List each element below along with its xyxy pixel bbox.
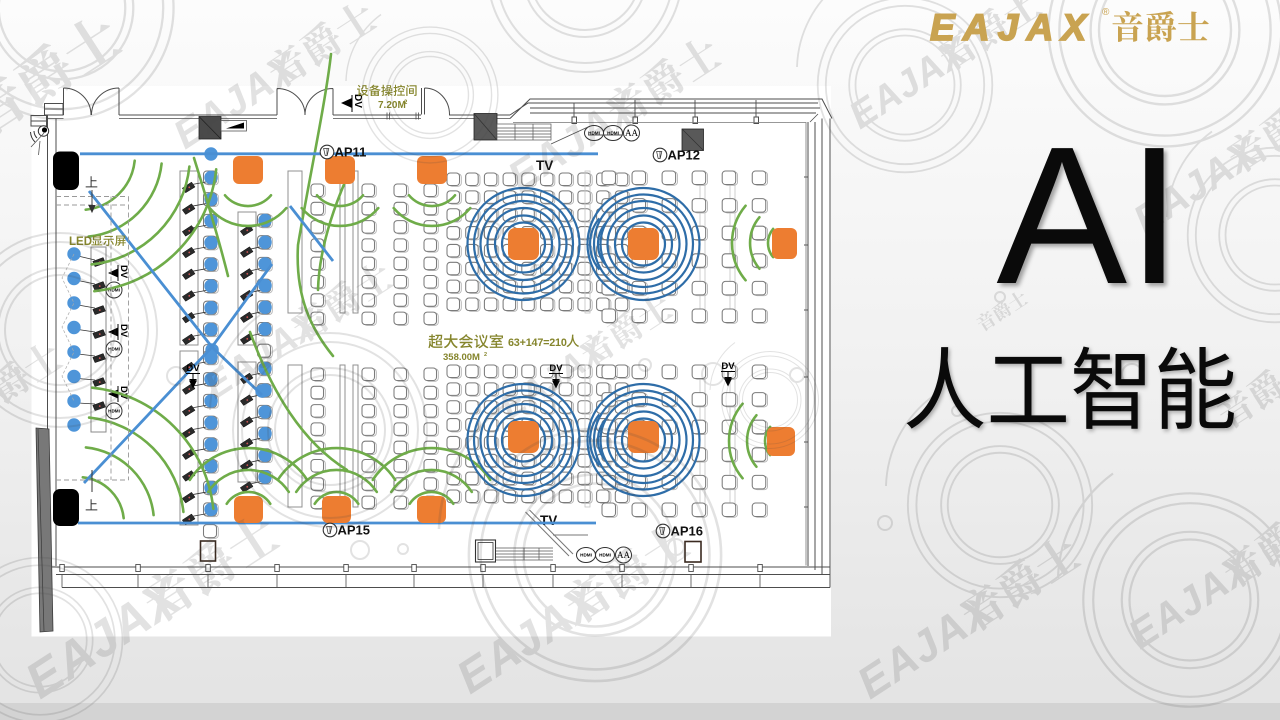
svg-text:AP11: AP11 (335, 145, 367, 160)
svg-text:TV: TV (540, 513, 557, 528)
svg-text:DV: DV (352, 94, 363, 108)
svg-text:AI: AI (996, 106, 1181, 325)
svg-text:63+147=210: 63+147=210 (508, 337, 567, 349)
svg-text:HDMI: HDMI (599, 553, 611, 558)
svg-text:®: ® (1102, 7, 1110, 18)
svg-text:HDMI: HDMI (580, 553, 592, 558)
svg-text:EAJAX: EAJAX (930, 7, 1094, 48)
svg-text:358.00M: 358.00M (443, 352, 480, 363)
svg-text:DV: DV (118, 324, 129, 338)
svg-text:AP12: AP12 (668, 148, 701, 163)
svg-text:2: 2 (484, 352, 487, 358)
